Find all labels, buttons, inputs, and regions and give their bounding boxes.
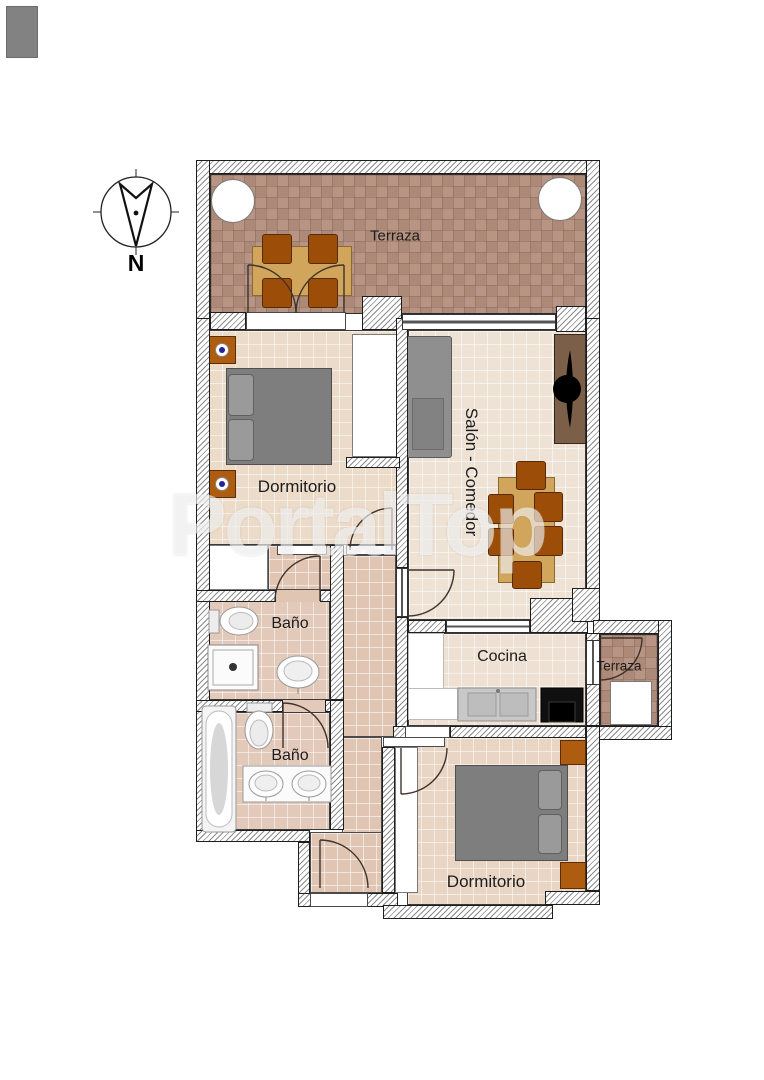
lamp-icon: [215, 343, 229, 357]
room-bano-1-floor: [208, 600, 330, 700]
room-bano-2-floor: [208, 712, 330, 830]
wall-outer-left: [196, 318, 210, 842]
wall-terraza-right: [586, 160, 600, 332]
wall-dorm2-top: [450, 726, 586, 738]
terraza-chair: [308, 278, 338, 308]
wall-terraza-left: [196, 160, 210, 330]
kitchen-counter-white-2: [408, 688, 458, 720]
wall-terraza-block-right: [556, 306, 586, 332]
closet-dorm2: [395, 747, 418, 893]
appliance-terraza-right: [610, 681, 652, 725]
wall-terraza2-bottom: [593, 726, 672, 740]
room-label-terraza-right: Terraza: [596, 659, 641, 674]
compass-north-label: N: [128, 250, 145, 276]
window-salon-terraza: [402, 314, 556, 330]
wall-terraza-top: [196, 160, 600, 174]
opening-salon-cocina: [446, 620, 530, 633]
wall-dorm2-bottom: [383, 905, 553, 919]
wall-right-step: [572, 588, 600, 622]
pillow: [228, 374, 254, 416]
wall-bano1-bottom-left: [196, 700, 283, 712]
door-gap-bano1: [276, 590, 320, 602]
threshold-dorm2-sill: [383, 737, 445, 747]
sofa-cushion: [6, 6, 38, 58]
nightstand: [208, 336, 236, 364]
watermark: PortalTop: [168, 474, 545, 576]
door-gap-bano2: [283, 700, 325, 712]
terraza-chair: [308, 234, 338, 264]
wall-cocina-right-bottom: [586, 683, 600, 726]
round-table-right: [538, 177, 582, 221]
terraza-chair: [262, 278, 292, 308]
wall-bano2-right: [330, 700, 344, 830]
wall-terraza-stub-left: [210, 312, 246, 330]
wall-cocina-top: [408, 620, 446, 633]
pillow: [538, 814, 562, 854]
wall-bano2-bottom: [196, 830, 310, 842]
wardrobe-dorm1: [352, 334, 398, 457]
room-label-dormitorio-2: Dormitorio: [447, 872, 525, 892]
wall-stub-under-wardrobe: [346, 457, 400, 468]
room-label-terraza-top: Terraza: [370, 228, 420, 245]
round-table-left: [211, 179, 255, 223]
pillow: [538, 770, 562, 810]
floor-plan-canvas: N Terraza Dormitorio Salón - Comedor Bañ…: [0, 0, 764, 1080]
threshold-french-door: [246, 312, 346, 330]
wall-dorm2-bottom-right: [545, 891, 600, 905]
wall-corridor-dorm2: [382, 747, 395, 893]
wall-bano1-top-left: [196, 590, 276, 602]
wall-dorm2-right: [586, 726, 600, 891]
room-label-cocina: Cocina: [477, 648, 527, 666]
threshold-entry-door: [310, 893, 368, 907]
compass-rose: N: [92, 158, 182, 278]
sofa-cushion: [412, 398, 444, 450]
wall-terraza2-right: [658, 620, 672, 740]
wall-salon-right: [586, 318, 600, 590]
terraza-chair: [262, 234, 292, 264]
wall-corridor-cocina: [396, 617, 408, 727]
nightstand: [560, 862, 586, 889]
compass-center-dot: [134, 211, 139, 216]
corridor-floor: [342, 555, 396, 737]
tv-cabinet: [554, 334, 586, 444]
pillow: [228, 419, 254, 461]
room-label-bano-2: Baño: [271, 747, 308, 765]
nightstand: [560, 740, 586, 765]
room-label-bano-1: Baño: [271, 615, 308, 633]
entry-hall-floor: [310, 832, 382, 893]
